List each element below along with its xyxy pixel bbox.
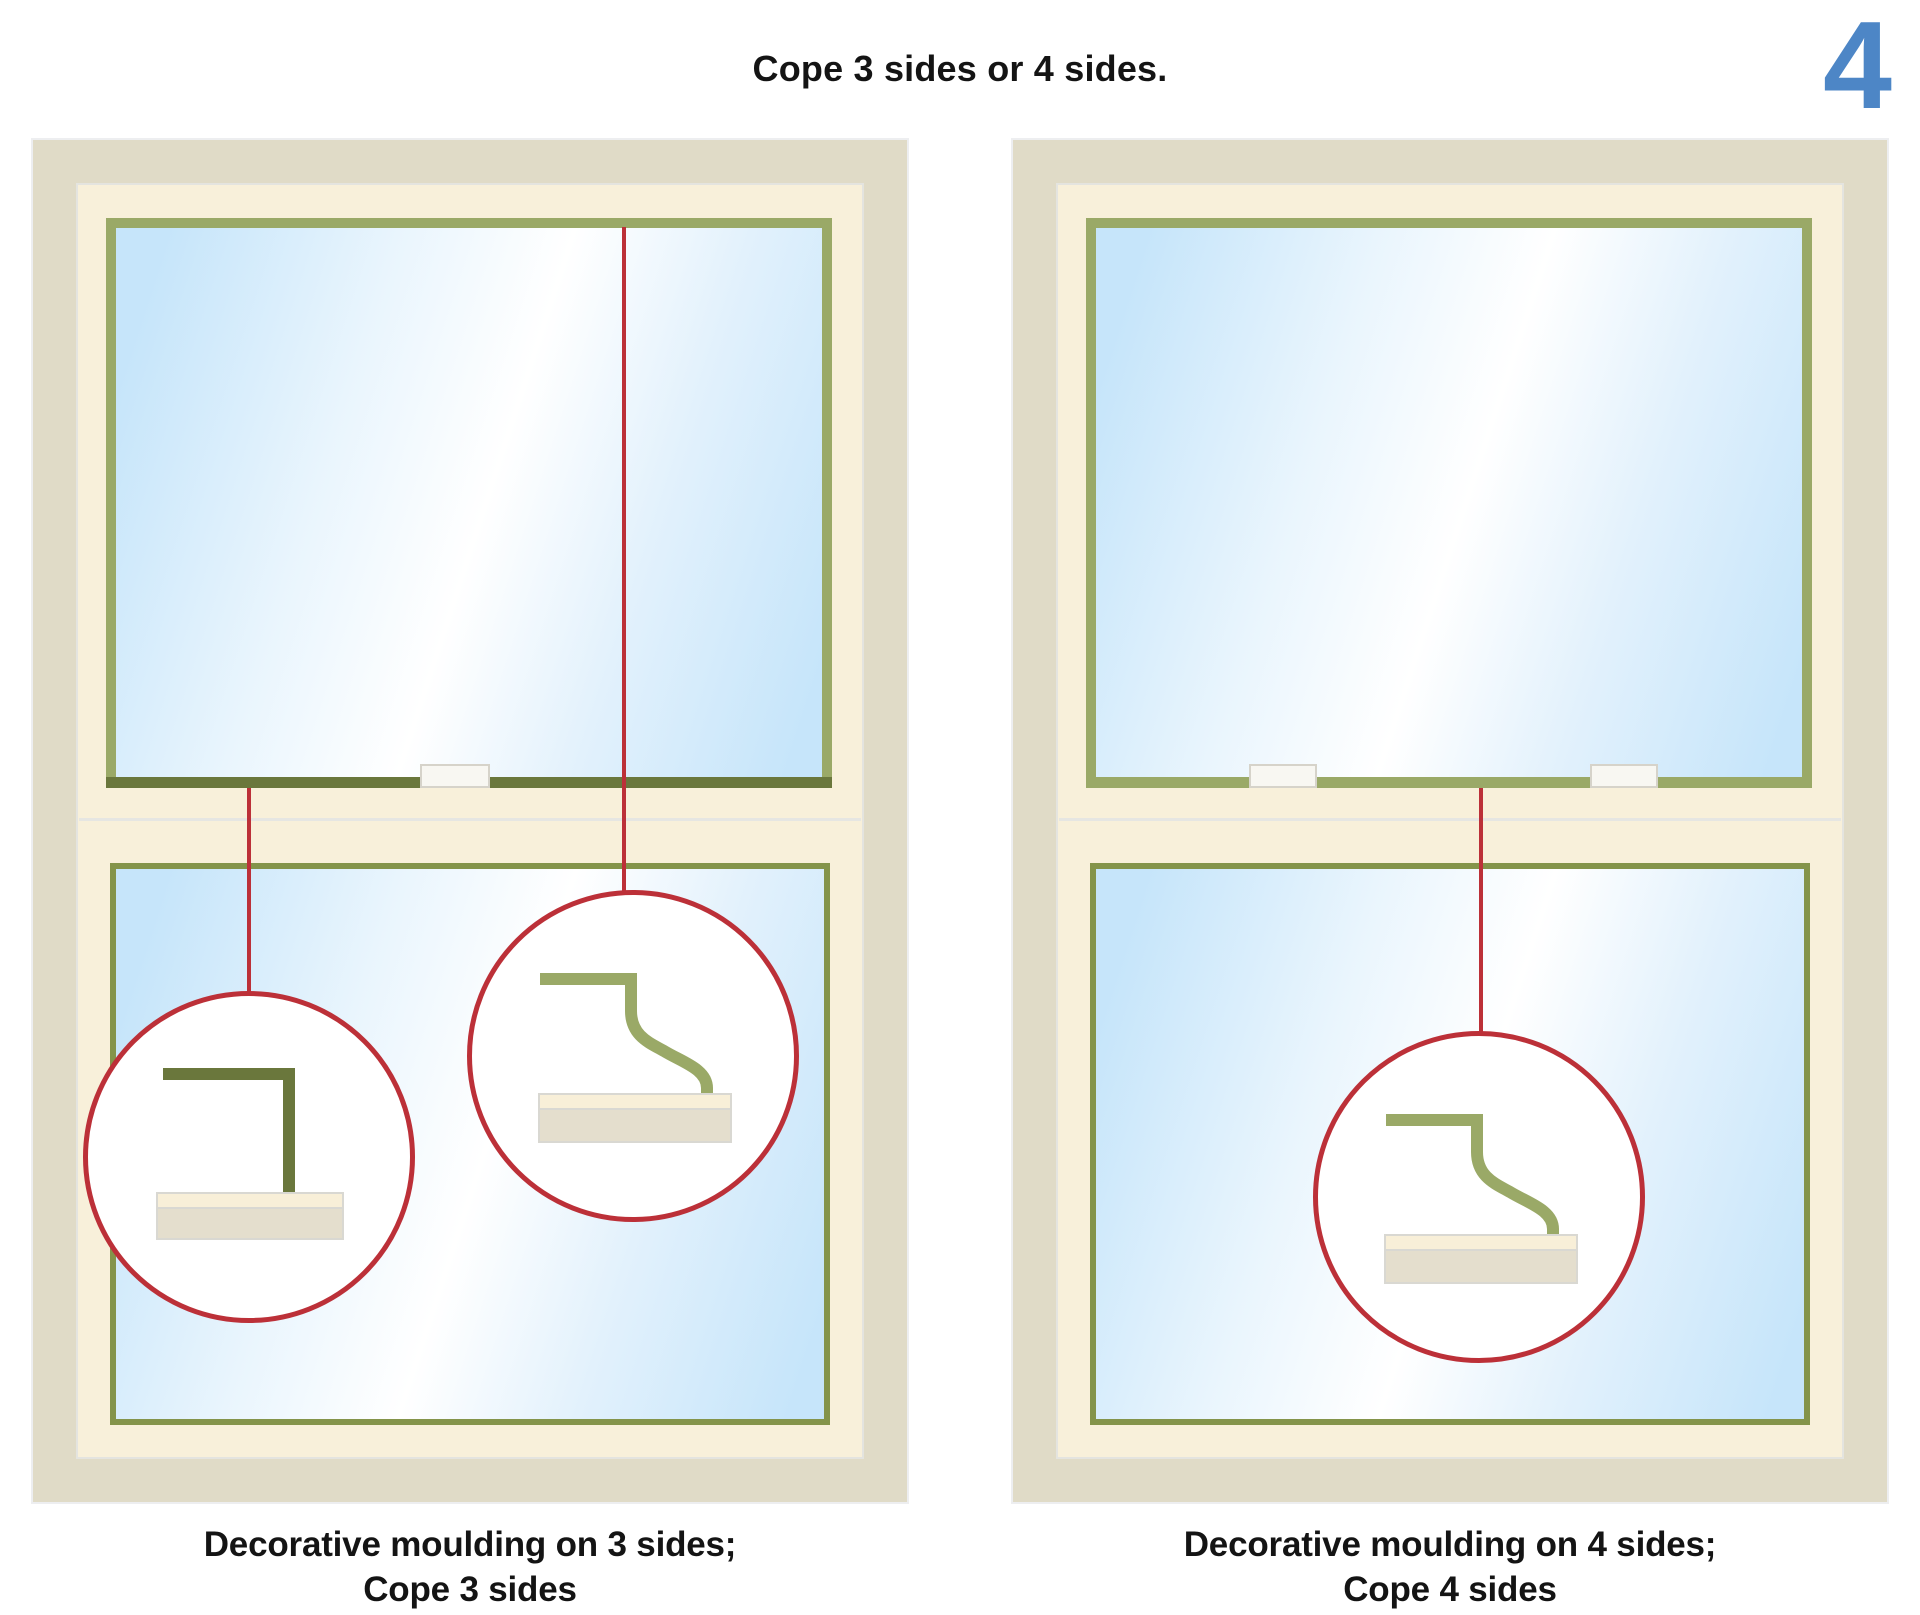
callout-line-moulding-profile <box>622 227 626 892</box>
sash-lift-tab-left <box>1249 764 1317 788</box>
sill-top <box>1385 1235 1577 1250</box>
caption-3-sides: Decorative moulding on 3 sides; Cope 3 s… <box>33 1522 907 1612</box>
caption-4-sides: Decorative moulding on 4 sides; Cope 4 s… <box>1013 1522 1887 1612</box>
sash-lift-tab-right <box>1590 764 1658 788</box>
diagram-canvas: Cope 3 sides or 4 sides. 4 <box>0 0 1920 1615</box>
sill-top <box>539 1094 731 1109</box>
callout-line-butt-joint <box>247 788 251 993</box>
upper-sash-glass <box>116 228 822 777</box>
moulding-profile-detail-callout <box>1313 1031 1645 1363</box>
caption-line-1: Decorative moulding on 3 sides; <box>33 1522 907 1567</box>
page-title: Cope 3 sides or 4 sides. <box>0 48 1920 90</box>
square-moulding-profile-icon <box>83 991 415 1323</box>
caption-line-2: Cope 4 sides <box>1013 1567 1887 1612</box>
sash-lift-tab <box>420 764 490 788</box>
moulding-profile-detail-callout <box>467 890 799 1222</box>
ogee-profile-path <box>1386 1120 1553 1239</box>
ogee-moulding-profile-icon <box>467 890 799 1222</box>
upper-sash-glass <box>1096 228 1802 777</box>
ogee-profile-path <box>540 979 707 1098</box>
ogee-moulding-profile-icon <box>1313 1031 1645 1363</box>
square-profile-path <box>163 1074 289 1196</box>
sash-meeting-seam <box>1059 818 1841 821</box>
step-number: 4 <box>1823 4 1892 128</box>
butt-joint-detail-callout <box>83 991 415 1323</box>
caption-line-2: Cope 3 sides <box>33 1567 907 1612</box>
sash-meeting-seam <box>79 818 861 821</box>
callout-line-moulding-profile <box>1479 788 1483 1033</box>
sill-top <box>157 1193 343 1208</box>
moulded-bottom-rail <box>1086 777 1812 788</box>
caption-line-1: Decorative moulding on 4 sides; <box>1013 1522 1887 1567</box>
